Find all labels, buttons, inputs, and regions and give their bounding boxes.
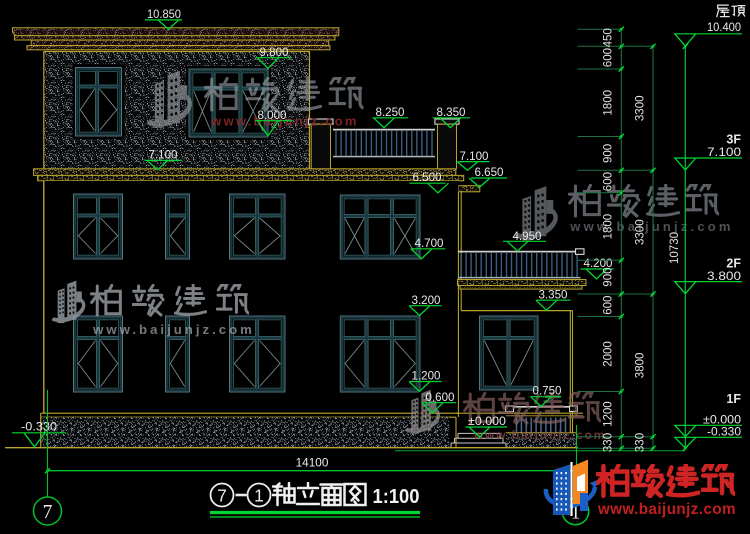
svg-text:14100: 14100 — [296, 456, 329, 470]
svg-text:7.100: 7.100 — [460, 150, 489, 163]
svg-text:3800: 3800 — [635, 353, 647, 379]
svg-text:450: 450 — [603, 28, 615, 47]
svg-text:8.350: 8.350 — [437, 106, 466, 119]
svg-text:900: 900 — [603, 144, 615, 163]
svg-text:www.baijunjz.com: www.baijunjz.com — [597, 501, 736, 518]
svg-text:3300: 3300 — [635, 219, 647, 245]
svg-text:7: 7 — [43, 502, 53, 523]
svg-text:0.600: 0.600 — [426, 391, 455, 404]
svg-text:1800: 1800 — [603, 214, 615, 240]
svg-text:±0.000: ±0.000 — [468, 415, 506, 428]
svg-text:0.750: 0.750 — [533, 385, 562, 398]
svg-text:7.100: 7.100 — [149, 149, 178, 162]
svg-text:10.400: 10.400 — [707, 20, 741, 34]
svg-text:6.650: 6.650 — [475, 166, 504, 179]
svg-text:1: 1 — [254, 486, 264, 506]
svg-text:7.100: 7.100 — [707, 145, 741, 159]
svg-text:www.baijunjz.com: www.baijunjz.com — [473, 428, 606, 442]
svg-text:www.baijunjz.com: www.baijunjz.com — [569, 219, 733, 234]
svg-text:-0.330: -0.330 — [707, 425, 741, 439]
svg-text:3.350: 3.350 — [539, 288, 568, 301]
svg-text:600: 600 — [603, 172, 615, 191]
svg-text:1.200: 1.200 — [412, 370, 441, 383]
svg-text:3.200: 3.200 — [412, 294, 441, 307]
svg-text:8.000: 8.000 — [258, 109, 287, 122]
svg-text:330: 330 — [635, 433, 647, 452]
svg-text:1200: 1200 — [603, 401, 615, 427]
svg-text:1800: 1800 — [603, 90, 615, 116]
svg-text:9.800: 9.800 — [260, 46, 289, 59]
svg-text:2000: 2000 — [603, 341, 615, 367]
svg-text:6.500: 6.500 — [413, 171, 442, 184]
svg-text:900: 900 — [603, 268, 615, 287]
svg-text:330: 330 — [603, 433, 615, 452]
svg-text:7: 7 — [217, 486, 227, 506]
svg-text:1F: 1F — [726, 392, 741, 406]
svg-text:3.800: 3.800 — [707, 269, 741, 283]
svg-text:3300: 3300 — [635, 96, 647, 122]
svg-text:10730: 10730 — [669, 232, 681, 264]
svg-text:1:100: 1:100 — [373, 485, 420, 508]
svg-text:www.baijunjz.com: www.baijunjz.com — [92, 322, 255, 337]
svg-text:600: 600 — [603, 296, 615, 315]
svg-text:4.700: 4.700 — [415, 237, 444, 250]
svg-text:10.850: 10.850 — [147, 8, 181, 21]
svg-text:8.250: 8.250 — [376, 106, 405, 119]
svg-text:600: 600 — [603, 48, 615, 67]
svg-text:-0.330: -0.330 — [21, 420, 57, 433]
